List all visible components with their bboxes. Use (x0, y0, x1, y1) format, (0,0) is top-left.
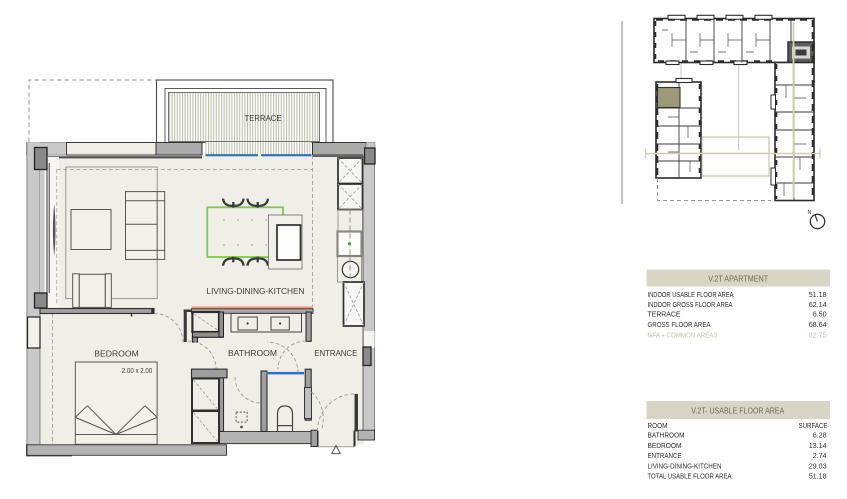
svg-text:BEDROOM: BEDROOM (648, 441, 682, 450)
svg-text:6.50: 6.50 (813, 310, 827, 319)
svg-text:13.14: 13.14 (809, 441, 827, 450)
svg-text:68.64: 68.64 (809, 320, 827, 329)
svg-text:6.28: 6.28 (813, 431, 827, 440)
svg-text:BATHROOM: BATHROOM (648, 431, 685, 440)
svg-text:51.18: 51.18 (809, 472, 827, 481)
svg-text:TOTAL USABLE FLOOR AREA: TOTAL USABLE FLOOR AREA (648, 472, 732, 481)
svg-text:LIVING-DINING-KITCHEN: LIVING-DINING-KITCHEN (648, 461, 722, 470)
svg-text:2.00 x 2.00: 2.00 x 2.00 (122, 368, 153, 375)
svg-text:GROSS FLOOR AREA: GROSS FLOOR AREA (648, 320, 711, 329)
svg-text:INDOOR USABLE FLOOR AREA: INDOOR USABLE FLOOR AREA (648, 290, 734, 299)
svg-text:V.2T- USABLE FLOOR AREA: V.2T- USABLE FLOOR AREA (691, 405, 784, 415)
svg-text:BATHROOM: BATHROOM (228, 348, 277, 358)
svg-text:INDOOR GROSS FLOOR AREA: INDOOR GROSS FLOOR AREA (648, 300, 733, 309)
svg-text:29.03: 29.03 (809, 461, 827, 470)
svg-text:TERRACE: TERRACE (648, 310, 681, 319)
svg-text:ENTRANCE: ENTRANCE (648, 451, 682, 460)
svg-text:SURFACE: SURFACE (799, 421, 828, 430)
svg-text:62.14: 62.14 (809, 300, 827, 309)
svg-text:LIVING-DINING-KITCHEN: LIVING-DINING-KITCHEN (207, 287, 305, 296)
svg-text:82.75: 82.75 (809, 331, 827, 340)
svg-text:51.18: 51.18 (809, 290, 827, 299)
svg-text:N: N (808, 210, 812, 216)
svg-text:ENTRANCE: ENTRANCE (314, 348, 357, 358)
svg-text:GFA + COMMON AREAS: GFA + COMMON AREAS (648, 331, 718, 340)
svg-text:V.2T APARTMENT: V.2T APARTMENT (708, 273, 769, 283)
svg-text:ROOM: ROOM (648, 421, 668, 430)
svg-text:BEDROOM: BEDROOM (94, 349, 139, 359)
svg-text:2.74: 2.74 (813, 451, 827, 460)
svg-text:TERRACE: TERRACE (245, 113, 282, 123)
